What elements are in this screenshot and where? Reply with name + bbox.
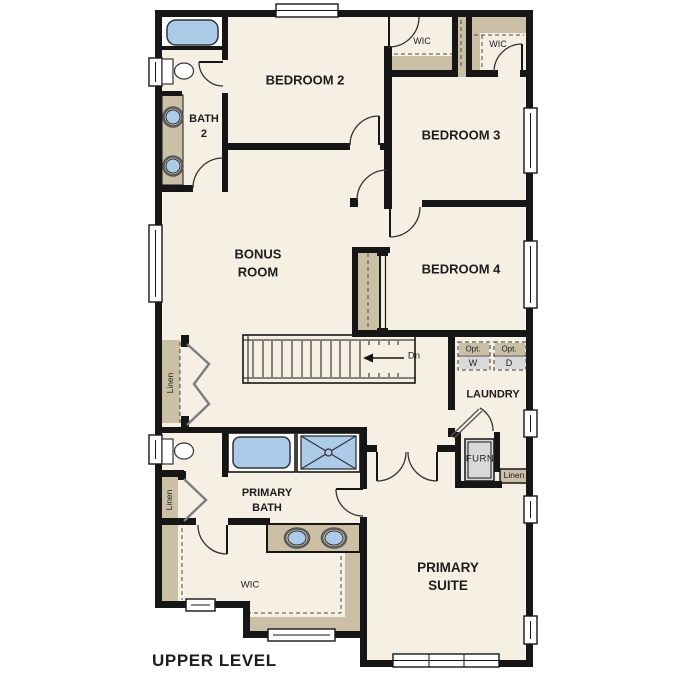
staircase: [243, 335, 415, 383]
room-label-bedroom4: BEDROOM 4: [422, 263, 501, 278]
wall-laundry-west: [448, 337, 455, 410]
wic1-shelf: [392, 56, 452, 72]
primary-suite-line2: SUITE: [417, 577, 479, 595]
wall-wic-mid-left: [452, 17, 458, 77]
bonus-line1: BONUS: [235, 245, 282, 263]
bathtub-bath2: [167, 20, 218, 45]
wall-closet4-jamb-bot: [377, 328, 388, 337]
wall-exterior-top: [155, 10, 533, 17]
wall-tub-surround: [162, 46, 222, 50]
wall-closet4-jamb-top: [377, 247, 388, 256]
wall-suite-north-b: [437, 445, 455, 452]
page-title: UPPER LEVEL: [152, 651, 277, 671]
label-linen-laundry: Linen: [504, 471, 525, 481]
primary-bath-line1: PRIMARY: [242, 486, 292, 501]
sink-bath2-1: [166, 110, 180, 124]
label-dryer: D: [506, 358, 513, 368]
label-washer: W: [469, 358, 478, 368]
primary-wic-shelf-right: [345, 552, 360, 617]
toilet-tank-bath2: [162, 59, 173, 84]
primary-wic-shelf-left: [162, 525, 178, 601]
wall-suite-west-b: [360, 517, 367, 631]
room-label-wic1: WIC: [413, 36, 431, 46]
toilet-tank-primary: [162, 439, 173, 464]
primary-suite-line1: PRIMARY: [417, 559, 479, 577]
wall-suite-west-a: [360, 427, 367, 489]
wall-bath2-east-upper: [222, 17, 228, 60]
room-label-primary-bath: PRIMARY BATH: [242, 486, 292, 516]
room-label-laundry: LAUNDRY: [466, 389, 519, 402]
wall-bath2-south: [155, 185, 193, 192]
wall-wic-north-a: [162, 518, 196, 525]
room-label-bonus: BONUS ROOM: [235, 245, 282, 280]
bonus-line2: ROOM: [235, 263, 282, 281]
primary-bath-line2: BATH: [242, 501, 292, 516]
toilet-bowl-bath2: [175, 63, 194, 79]
label-linen-bath: Linen: [165, 490, 175, 511]
floor-plan: BEDROOM 2 BEDROOM 3 BEDROOM 4 BONUS ROOM…: [0, 0, 687, 687]
wall-suite-north-a: [367, 445, 377, 452]
label-furnace: FURN: [466, 455, 494, 466]
wall-exterior-left: [155, 10, 162, 608]
label-washer-opt: Opt.: [465, 344, 480, 353]
wall-furn-south: [455, 481, 502, 488]
wall-wic-mid-right: [466, 17, 472, 77]
label-stairs-dn: Dn: [408, 352, 420, 363]
wall-wic-north-b: [228, 518, 270, 525]
sink-primary-2: [325, 531, 343, 545]
room-label-bedroom2: BEDROOM 2: [266, 74, 345, 89]
room-label-bedroom3: BEDROOM 3: [422, 129, 501, 144]
wall-furn-east: [494, 432, 500, 472]
wall-closet4-west: [352, 247, 358, 337]
wall-linen1-jamb-bot: [181, 416, 189, 428]
wall-tub-west: [222, 433, 228, 477]
wall-bedroom3-south: [422, 200, 526, 207]
shower-drain: [325, 449, 332, 456]
wic2-shelf-top: [472, 17, 526, 33]
toilet-bowl-primary: [175, 443, 194, 459]
wic-divider-shelf: [458, 17, 466, 77]
wall-bath2-divider: [162, 91, 182, 96]
bath2-line1: BATH: [189, 112, 219, 127]
wall-wic1-south: [392, 70, 452, 77]
wall-furn-west: [455, 432, 461, 488]
room-label-wic-primary: WIC: [241, 581, 259, 592]
wic2-shelf-left: [472, 33, 480, 70]
bath2-line2: 2: [189, 127, 219, 142]
bathtub-primary: [233, 437, 290, 468]
sink-primary-1: [288, 531, 306, 545]
room-label-bath2: BATH 2: [189, 112, 219, 142]
room-label-primary-suite: PRIMARY SUITE: [417, 559, 479, 595]
label-dryer-opt: Opt.: [501, 344, 516, 353]
wall-bedroom2-south-a: [222, 143, 350, 150]
label-linen-hall: Linen: [166, 373, 176, 394]
sink-bath2-2: [166, 159, 180, 173]
floor-plan-drawing: [0, 0, 687, 687]
room-label-wic2: WIC: [489, 39, 507, 49]
